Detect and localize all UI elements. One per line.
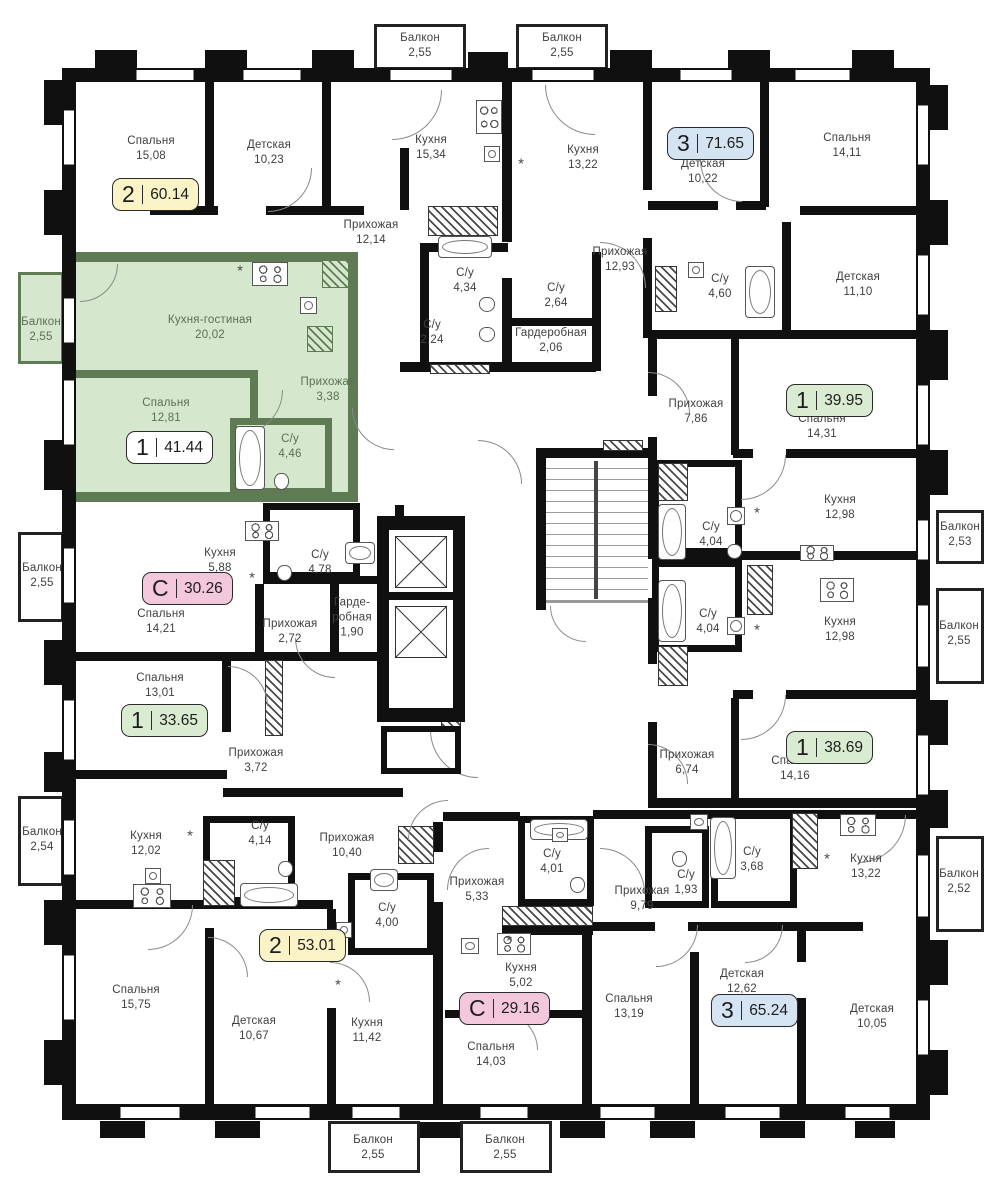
room-area: 2,53 — [940, 535, 980, 550]
room-label: Прихожая12,14 — [344, 218, 399, 248]
room-name: С/у — [711, 273, 729, 285]
bathtub-icon — [438, 236, 492, 258]
wall — [782, 222, 791, 330]
room-name: Детская — [232, 1015, 276, 1027]
room-name: С/у — [251, 820, 269, 832]
badge-room-count: 1 — [131, 709, 144, 732]
window — [352, 1107, 400, 1118]
room-name: Кухня — [415, 134, 447, 146]
room-area: 2,55 — [542, 46, 582, 61]
washing-machine-icon — [727, 507, 745, 525]
room-area: 12,98 — [824, 508, 856, 523]
badge-area: 33.65 — [159, 713, 198, 729]
window — [918, 520, 928, 560]
fridge-mark: * — [335, 977, 341, 994]
badge-area: 71.65 — [705, 136, 744, 152]
sink-icon — [688, 262, 704, 278]
room-name: Гардеробная — [515, 327, 587, 339]
vent-shaft — [792, 813, 818, 869]
badge-area: 38.69 — [824, 740, 863, 756]
vent-shaft — [502, 906, 593, 926]
door-arc — [408, 800, 448, 840]
room-area: 13,01 — [136, 686, 184, 701]
room-name: С/у — [423, 319, 441, 331]
apartment-badge[interactable]: 365.24 — [711, 994, 798, 1027]
badge-divider — [493, 999, 494, 1018]
room-label: С/у2,64 — [544, 281, 567, 311]
door-arc — [478, 440, 522, 484]
vent-shaft — [747, 565, 773, 615]
room-name: Балкон — [939, 620, 979, 632]
bathtub-icon — [370, 869, 398, 891]
wall — [760, 82, 769, 207]
room-name: Кухня — [130, 830, 162, 842]
wall — [44, 900, 62, 945]
room-name: Кухня — [567, 144, 599, 156]
window — [480, 1107, 528, 1118]
room-area: 10,05 — [850, 1017, 894, 1032]
room-area: 6,74 — [660, 763, 715, 778]
room-area: 14,03 — [467, 1055, 515, 1070]
room-name: Прихожая — [263, 618, 318, 630]
room-area: 3,38 — [301, 390, 356, 405]
apartment-wall — [76, 370, 258, 378]
sink-icon — [300, 297, 317, 314]
room-name: С/у — [743, 846, 761, 858]
room-label: Прихожая7,86 — [669, 397, 724, 427]
window — [918, 255, 928, 315]
room-name: Кухня — [351, 1017, 383, 1029]
wall — [930, 700, 948, 745]
wall — [400, 148, 409, 210]
room-area: 4,14 — [248, 834, 271, 849]
room-label: С/у2,24 — [420, 318, 443, 348]
room-name: Спальня — [127, 135, 175, 147]
room-label: С/у1,93 — [674, 868, 697, 898]
apartment-badge[interactable]: 133.65 — [121, 704, 208, 737]
room-area: 2,72 — [263, 632, 318, 647]
fridge-mark: * — [237, 263, 243, 280]
room-name: Кухня — [505, 962, 537, 974]
vent-shaft — [603, 440, 643, 451]
stair-stringer — [594, 461, 598, 599]
room-area: 5,33 — [450, 890, 505, 905]
room-label: Кухня12,98 — [824, 493, 856, 523]
balcony-label: Балкон2,55 — [22, 561, 62, 591]
wall — [760, 1121, 805, 1138]
room-name: Прихожая — [660, 749, 715, 761]
window — [918, 385, 928, 445]
wall — [322, 82, 331, 212]
room-name: Прихожая — [301, 376, 356, 388]
wall — [593, 922, 655, 931]
wall — [916, 68, 930, 1120]
wall — [433, 902, 443, 1107]
room-name: Балкон — [353, 1134, 393, 1146]
room-area: 14,21 — [137, 622, 185, 637]
elevator-shaft — [389, 530, 453, 592]
room-label: Спальня14,11 — [823, 131, 871, 161]
window — [64, 955, 74, 1020]
room-name: С/у — [456, 267, 474, 279]
wall — [593, 810, 655, 819]
room-name: Спальня — [112, 984, 160, 996]
room-label: Прихожая12,93 — [593, 245, 648, 275]
badge-divider — [156, 438, 157, 457]
fridge-mark: * — [506, 933, 512, 950]
room-label: Кухня12,02 — [130, 829, 162, 859]
room-label: Кухня-гостиная20,02 — [168, 313, 252, 343]
fridge-mark: * — [187, 828, 193, 845]
room-label: С/у4,00 — [375, 901, 398, 931]
wall — [95, 50, 137, 68]
window — [918, 605, 928, 667]
apartment-badge[interactable]: 138.69 — [786, 731, 873, 764]
room-label: Детская12,62 — [720, 967, 764, 997]
elevator-x-icon — [395, 606, 447, 658]
room-area: 1,93 — [674, 883, 697, 898]
wall — [582, 930, 592, 1107]
bathtub-icon — [240, 883, 298, 907]
stove-icon — [245, 521, 279, 541]
wall — [205, 82, 214, 212]
toilet-icon — [278, 861, 293, 877]
wall — [420, 1122, 460, 1138]
vent-shaft — [658, 646, 688, 686]
room-name: Балкон — [22, 826, 62, 838]
room-label: Гарде- робная1,90 — [332, 596, 372, 641]
room-name: Спальня — [137, 608, 185, 620]
room-area: 1,90 — [332, 625, 372, 640]
sink-icon — [461, 938, 479, 954]
door-arc — [228, 666, 268, 706]
door-arc — [352, 408, 394, 450]
apartment-badge[interactable]: 139.95 — [786, 384, 873, 417]
wall — [44, 640, 62, 685]
room-label: С/у4,60 — [708, 272, 731, 302]
wall — [502, 82, 512, 242]
room-area: 10,67 — [232, 1029, 276, 1044]
room-name: С/у — [378, 902, 396, 914]
wall — [312, 50, 354, 68]
room-label: Кухня5,02 — [505, 961, 537, 991]
room-name: Спальня — [823, 132, 871, 144]
room-label: Прихожая2,72 — [263, 617, 318, 647]
room-name: Прихожая — [229, 747, 284, 759]
room-name: Прихожая — [615, 885, 670, 897]
room-label: С/у4,01 — [540, 847, 563, 877]
balcony-label: Балкон2,55 — [939, 619, 979, 649]
wall — [786, 690, 916, 699]
wall — [930, 940, 948, 985]
window — [918, 735, 928, 795]
room-area: 10,22 — [681, 172, 725, 187]
room-name: Спальня — [605, 993, 653, 1005]
room-area: 4,46 — [278, 447, 301, 462]
elevator-shaft — [389, 600, 453, 708]
badge-room-count: С — [469, 997, 486, 1020]
badge-divider — [142, 185, 143, 204]
wall — [930, 85, 948, 130]
badge-divider — [816, 391, 817, 410]
window — [390, 70, 452, 80]
balcony-label: Балкон2,52 — [939, 867, 979, 897]
stove-icon — [252, 262, 288, 286]
wall — [44, 80, 62, 125]
room-area: 13,19 — [605, 1007, 653, 1022]
room-area: 9,79 — [615, 899, 670, 914]
window — [64, 110, 74, 165]
wall — [855, 1121, 895, 1138]
room-area: 2,24 — [420, 333, 443, 348]
vent-shaft — [203, 860, 235, 906]
room-label: Детская11,10 — [836, 270, 880, 300]
wall — [930, 450, 948, 495]
stair-edge — [546, 600, 648, 603]
wall — [652, 330, 916, 339]
sink-icon — [484, 146, 500, 162]
room-label: С/у4,14 — [248, 819, 271, 849]
door-arc — [741, 455, 786, 500]
wall — [786, 449, 916, 458]
badge-area: 60.14 — [150, 187, 189, 203]
toilet-icon — [570, 877, 585, 893]
badge-divider — [816, 738, 817, 757]
room-name: Детская — [850, 1003, 894, 1015]
room-label: Детская10,23 — [247, 138, 291, 168]
door-arc — [148, 905, 193, 950]
room-label: Спальня14,21 — [137, 607, 185, 637]
wall — [731, 698, 739, 804]
room-area: 10,40 — [320, 846, 375, 861]
wall — [536, 448, 546, 610]
stove-icon — [476, 100, 502, 134]
bathtub-icon — [710, 817, 736, 879]
badge-divider — [176, 579, 177, 598]
room-name: С/у — [543, 848, 561, 860]
fridge-mark: * — [518, 156, 524, 173]
wall — [420, 243, 429, 369]
room-name: С/у — [677, 869, 695, 881]
room-label: Кухня12,98 — [824, 615, 856, 645]
fridge-mark: * — [824, 851, 830, 868]
room-area: 4,04 — [699, 535, 722, 550]
room-label: Прихожая6,74 — [660, 748, 715, 778]
room-name: С/у — [702, 521, 720, 533]
room-area: 12,98 — [824, 630, 856, 645]
room-area: 10,23 — [247, 153, 291, 168]
toilet-icon — [274, 473, 289, 490]
wall — [800, 206, 916, 215]
window — [845, 1107, 890, 1118]
wall — [648, 201, 718, 210]
wall — [502, 278, 512, 368]
room-label: Кухня15,34 — [415, 133, 447, 163]
room-area: 11,10 — [836, 285, 880, 300]
wall — [797, 930, 806, 962]
apartment-badge[interactable]: 253.01 — [259, 929, 346, 962]
room-label: Детская10,67 — [232, 1014, 276, 1044]
sink-icon — [145, 868, 161, 884]
room-area: 2,52 — [939, 882, 979, 897]
window — [532, 70, 594, 80]
apartment-badge[interactable]: 260.14 — [112, 178, 199, 211]
room-area: 11,42 — [351, 1031, 383, 1046]
wall — [643, 82, 652, 190]
room-area: 2,55 — [400, 46, 440, 61]
vent-shaft — [265, 660, 283, 736]
badge-area: 53.01 — [297, 938, 336, 954]
wall — [223, 788, 403, 797]
window — [795, 70, 850, 80]
stove-icon — [820, 578, 854, 602]
badge-area: 30.26 — [184, 581, 223, 597]
room-label: Кухня13,22 — [567, 143, 599, 173]
wall — [930, 1050, 948, 1095]
wall — [44, 190, 62, 235]
room-label: Спальня14,03 — [467, 1040, 515, 1070]
room-area: 15,75 — [112, 998, 160, 1013]
room-area: 13,22 — [567, 158, 599, 173]
room-label: Прихожая9,79 — [615, 884, 670, 914]
balcony-label: Балкон2,53 — [940, 520, 980, 550]
wall — [205, 50, 247, 68]
room-name: С/у — [281, 433, 299, 445]
room-area: 7,86 — [669, 412, 724, 427]
room-area: 2,55 — [939, 634, 979, 649]
service-room — [381, 726, 461, 774]
elevator-x-icon — [395, 536, 447, 588]
wall — [650, 1121, 695, 1138]
room-label: Прихожая3,72 — [229, 746, 284, 776]
badge-room-count: 1 — [136, 436, 149, 459]
vent-shaft — [655, 266, 677, 312]
room-area: 4,00 — [375, 916, 398, 931]
wall — [100, 1121, 145, 1138]
window — [600, 1107, 655, 1118]
room-name: Балкон — [939, 868, 979, 880]
washing-machine-icon — [727, 617, 745, 635]
room-name: Балкон — [485, 1134, 525, 1146]
room-name: Спальня — [142, 397, 190, 409]
room-label: Гардеробная2,06 — [515, 326, 587, 356]
room-area: 2,55 — [485, 1148, 525, 1163]
window — [64, 700, 74, 760]
wall — [610, 50, 652, 68]
room-area: 14,11 — [823, 146, 871, 161]
toilet-icon — [672, 851, 687, 867]
room-area: 3,68 — [740, 860, 763, 875]
room-name: Кухня-гостиная — [168, 314, 252, 326]
window — [243, 70, 301, 80]
room-label: Прихожая10,40 — [320, 831, 375, 861]
room-label: Спальня12,81 — [142, 396, 190, 426]
room-label: С/у4,46 — [278, 432, 301, 462]
room-area: 12,14 — [344, 233, 399, 248]
fridge-mark: * — [754, 505, 760, 522]
apartment-wall — [62, 252, 358, 262]
wall — [731, 339, 739, 455]
room-area: 15,34 — [415, 148, 447, 163]
room-label: Кухня13,22 — [850, 852, 882, 882]
badge-room-count: 2 — [122, 183, 135, 206]
window — [64, 298, 74, 343]
room-area: 5,02 — [505, 976, 537, 991]
wall — [44, 752, 62, 792]
room-name: Кухня — [824, 494, 856, 506]
door-arc — [208, 937, 248, 977]
room-label: Прихожая5,33 — [450, 875, 505, 905]
toilet-icon — [479, 297, 495, 312]
apartment-badge[interactable]: С29.16 — [459, 992, 550, 1025]
room-area: 2,55 — [353, 1148, 393, 1163]
room-area: 3,72 — [229, 761, 284, 776]
badge-room-count: С — [152, 577, 169, 600]
room-area: 14,31 — [798, 427, 846, 442]
window — [64, 380, 74, 445]
apartment-badge[interactable]: С30.26 — [142, 572, 233, 605]
wall — [215, 1121, 260, 1138]
room-name: Гарде- робная — [332, 597, 372, 624]
apartment-badge[interactable]: 371.65 — [667, 127, 754, 160]
wall — [930, 200, 948, 245]
door-arc — [550, 606, 586, 642]
door-arc — [545, 85, 595, 135]
stove-icon — [840, 814, 876, 836]
room-name: Прихожая — [320, 832, 375, 844]
room-label: Спальня13,19 — [605, 992, 653, 1022]
room-name: Прихожая — [669, 398, 724, 410]
balcony-label: Балкон2,55 — [542, 31, 582, 61]
room-area: 15,08 — [127, 149, 175, 164]
floor-plan: *********Спальня15,08Детская10,23Кухня15… — [0, 0, 1000, 1186]
wall — [728, 50, 770, 68]
window — [918, 855, 928, 917]
window — [918, 1000, 928, 1055]
window — [136, 70, 194, 80]
room-area: 20,02 — [168, 328, 252, 343]
badge-divider — [697, 134, 698, 153]
apartment-badge[interactable]: 141.44 — [126, 431, 213, 464]
vent-shaft — [307, 326, 333, 352]
badge-room-count: 1 — [796, 389, 809, 412]
room-area: 14,16 — [771, 769, 819, 784]
wall — [690, 952, 699, 1107]
room-area: 12,02 — [130, 844, 162, 859]
wall — [62, 652, 402, 661]
stove-icon — [800, 545, 834, 561]
wall — [327, 1008, 336, 1107]
wall — [560, 1121, 605, 1138]
vent-shaft — [658, 463, 688, 501]
badge-room-count: 3 — [677, 132, 690, 155]
wall — [930, 330, 948, 380]
room-name: Спальня — [136, 672, 184, 684]
bathtub-icon — [745, 266, 775, 318]
room-name: Кухня — [204, 547, 236, 559]
room-label: Спальня15,75 — [112, 983, 160, 1013]
badge-area: 65.24 — [749, 1003, 788, 1019]
room-name: Детская — [247, 139, 291, 151]
vent-shaft — [322, 260, 349, 288]
room-area: 2,64 — [544, 296, 567, 311]
room-name: Балкон — [400, 32, 440, 44]
room-label: Детская10,22 — [681, 157, 725, 187]
room-label: С/у4,04 — [696, 607, 719, 637]
fridge-mark: * — [754, 622, 760, 639]
room-name: Балкон — [940, 521, 980, 533]
room-label: С/у4,04 — [699, 520, 722, 550]
